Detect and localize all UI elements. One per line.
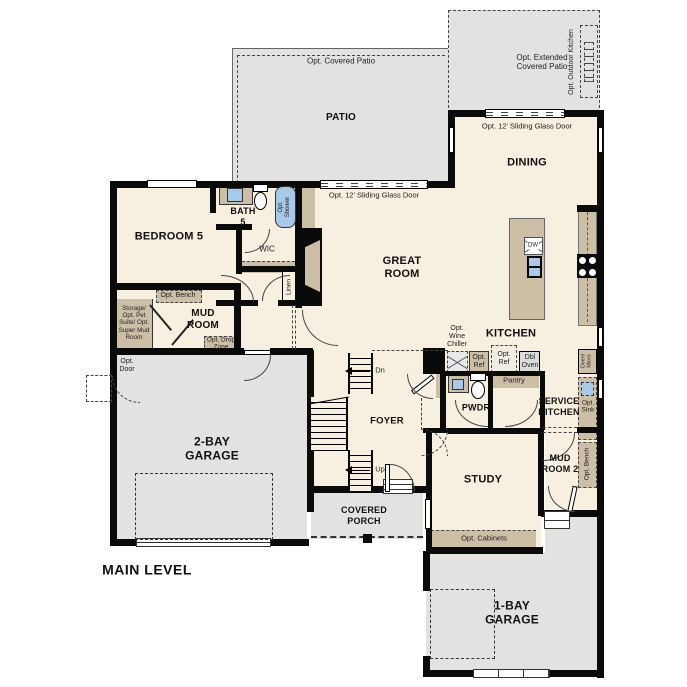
- service-sink: [581, 382, 594, 396]
- pantry-label: Pantry: [503, 377, 525, 386]
- floor-plan: PATIO Opt. Covered Patio Opt. Extended C…: [0, 0, 687, 687]
- room-label-bedroom5: BEDROOM 5: [135, 230, 203, 243]
- linen-label: Linen: [285, 279, 292, 295]
- room-label-mud-room2: MUD ROOM 2: [542, 453, 579, 475]
- room-label-garage1: 1-BAY GARAGE: [485, 599, 539, 628]
- opt-cabinets-label: Opt. Cabinets: [461, 535, 507, 544]
- stair-arrow-line: [352, 470, 370, 471]
- opt-line: [421, 398, 422, 430]
- opt-sink-label: Opt. Sink: [582, 400, 595, 415]
- room-label-dining: DINING: [507, 156, 547, 169]
- wall: [488, 428, 512, 433]
- wall: [423, 656, 430, 674]
- extended-patio-label: Opt. Extended Covered Patio: [516, 53, 567, 71]
- dishwasher-label: DW: [527, 243, 539, 250]
- stair-arrow-line: [352, 371, 370, 372]
- wall: [295, 181, 302, 308]
- opt-ref-label: Opt. Ref: [472, 354, 485, 370]
- window: [425, 499, 431, 529]
- outdoor-kitchen-label: Opt. Outdoor Kitchen: [568, 29, 576, 95]
- wall: [210, 181, 216, 213]
- toilet-bowl: [254, 192, 267, 210]
- toilet-bowl: [471, 381, 485, 399]
- room-label-study: STUDY: [464, 473, 502, 486]
- sliding-door-label: Opt. 12' Sliding Glass Door: [329, 192, 419, 201]
- wall: [577, 427, 603, 433]
- fireplace-insert: [305, 240, 320, 292]
- wine-chiller-box: [447, 351, 468, 373]
- sliding-glass-door: [485, 109, 565, 118]
- room-label-foyer: FOYER: [370, 415, 404, 426]
- room-label-bath5: BATH 5: [230, 206, 255, 228]
- wall: [577, 205, 603, 212]
- outdoor-kitchen-grill: [584, 42, 594, 82]
- wall: [440, 372, 446, 430]
- mudroom2-steps: [544, 511, 570, 529]
- opt-door-box: [86, 375, 112, 402]
- island-sink: [527, 256, 542, 278]
- room-label-mud-room: MUD ROOM: [187, 308, 219, 332]
- pwdr-sink: [452, 379, 464, 390]
- room-label-pwdr: PWDR: [462, 403, 490, 414]
- bath5-sink: [227, 188, 243, 202]
- stair-arrow-head: [345, 367, 352, 375]
- garage1-door: [473, 669, 550, 678]
- wall: [426, 547, 543, 554]
- patio-opt-dash-left: [237, 55, 238, 183]
- opt-ref-label: Opt. Ref: [497, 351, 510, 367]
- oven-micro-label: Oven/ Micro: [581, 354, 594, 369]
- opt-shower-label: Opt. Shower: [278, 197, 292, 217]
- sliding-door-label: Opt. 12' Sliding Glass Door: [482, 123, 572, 132]
- dbl-oven-label: Dbl Oven: [522, 354, 539, 370]
- corridor-dash: [292, 305, 296, 349]
- storage-label: Storage/ Opt. Pet Suite/ Opt. Super Mud …: [119, 305, 150, 341]
- room-label-kitchen: KITCHEN: [486, 327, 536, 340]
- opt-door-label: Opt. Door: [119, 358, 134, 374]
- window: [147, 180, 197, 188]
- wall: [488, 371, 493, 430]
- sliding-glass-door: [320, 180, 428, 189]
- stair-mid: [311, 397, 348, 451]
- wall: [423, 348, 445, 374]
- toilet-tank: [253, 184, 268, 192]
- wall: [236, 266, 296, 272]
- window: [449, 127, 454, 153]
- wall: [307, 486, 385, 493]
- wic-label: WIC: [259, 244, 275, 253]
- porch-column: [363, 534, 372, 543]
- window: [598, 379, 603, 399]
- stair-down-label: Dn: [375, 367, 385, 376]
- opt-bench-label: Opt. Bench: [583, 448, 590, 481]
- room-label-great-room: GREAT ROOM: [383, 255, 422, 281]
- opt-bench-label: Opt. Bench: [160, 292, 195, 300]
- wall: [110, 181, 117, 546]
- wall: [444, 371, 540, 376]
- garage2-opt-rect: [135, 473, 273, 540]
- opt-drop-zone-label: Opt. Drop Zone: [207, 337, 235, 352]
- room-label-garage2: 2-BAY GARAGE: [185, 435, 239, 464]
- opt-covered-patio-label: Opt. Covered Patio: [307, 56, 375, 65]
- ceiling-break: [372, 350, 448, 351]
- fireplace-chase: [302, 185, 315, 230]
- room-label-covered-porch: COVERED PORCH: [341, 505, 387, 527]
- plan-title: MAIN LEVEL: [102, 562, 192, 579]
- stair-arrow-head: [345, 466, 352, 474]
- wall: [423, 551, 430, 591]
- cooktop: [577, 254, 598, 278]
- room-label-service-kitchen: SERVICE KITCHEN: [538, 396, 579, 418]
- toilet-tank: [470, 373, 486, 381]
- room-label-patio: PATIO: [326, 112, 356, 124]
- wine-chiller-label: Opt. Wine Chiller: [447, 325, 467, 349]
- window: [598, 127, 603, 153]
- window: [598, 327, 603, 347]
- stair-up-label: Up: [375, 466, 385, 475]
